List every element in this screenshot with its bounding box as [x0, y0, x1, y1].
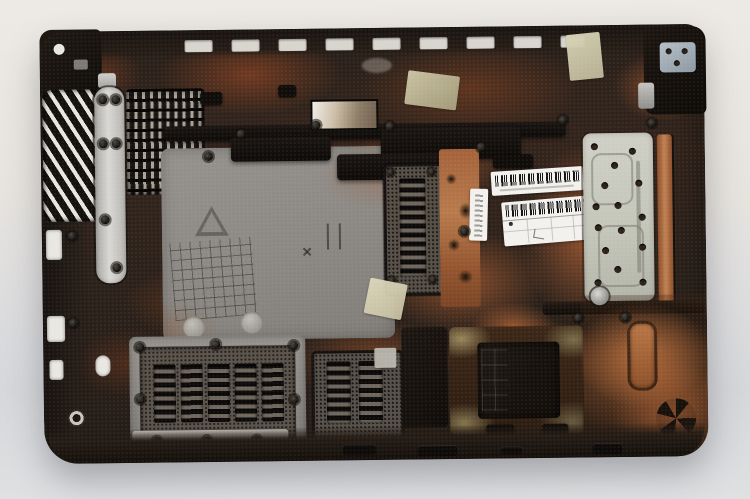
screw — [112, 139, 121, 148]
screw — [460, 227, 469, 236]
screw — [99, 139, 108, 148]
printed-dot — [509, 222, 513, 226]
screw — [477, 143, 486, 152]
screw — [69, 319, 78, 328]
rim-notch — [278, 39, 306, 51]
hinge-metal-tab — [74, 59, 88, 69]
plate-hole — [635, 180, 642, 187]
hinge-metal-fitting — [660, 42, 696, 72]
screw — [290, 395, 299, 404]
divider-block — [401, 327, 448, 428]
plate-hole — [639, 244, 646, 251]
screw — [429, 276, 436, 283]
molded-grid-pattern — [169, 237, 257, 321]
louver-column — [261, 363, 284, 421]
plastic-nub — [493, 154, 533, 168]
plate-hole — [611, 162, 618, 169]
left-shield-bracket — [94, 87, 126, 283]
oval-slot-cutout — [95, 355, 110, 376]
screw — [112, 263, 121, 272]
hinge-silver-post — [638, 83, 654, 109]
molded-x-mark — [302, 247, 312, 257]
screw — [98, 95, 107, 104]
right-shield-plate — [583, 133, 655, 302]
molded-double-bar-mark — [327, 223, 341, 249]
screw — [204, 152, 213, 161]
plate-hole — [595, 224, 602, 231]
bracket-top-tab — [98, 73, 116, 88]
rim-notch — [466, 37, 494, 49]
ringed-screw-hole — [68, 410, 85, 427]
photo-background — [0, 0, 750, 499]
stamped-channel — [591, 153, 634, 206]
port-cutout — [46, 230, 62, 260]
rim-notch — [419, 37, 447, 49]
louver-column — [326, 361, 351, 423]
tape-piece — [404, 70, 460, 110]
rim-cutout — [500, 446, 522, 454]
table-line — [503, 224, 593, 232]
handwritten-mark — [533, 229, 545, 240]
table-line — [572, 215, 575, 239]
plate-hole — [593, 203, 600, 210]
rim-notch — [184, 40, 212, 52]
louver-column — [358, 361, 383, 423]
rim-notch — [513, 36, 541, 48]
screw — [386, 122, 395, 131]
louver-column — [180, 364, 203, 422]
port-cutout — [49, 360, 63, 380]
screw — [237, 130, 246, 139]
tape-piece — [364, 277, 408, 320]
vertical-sticker-text — [474, 193, 483, 237]
barcode-sticker-bottom — [501, 195, 594, 246]
louver-column — [207, 364, 230, 422]
plastic-nub — [278, 85, 296, 97]
left-exhaust-vent — [42, 89, 98, 222]
bay-molded-grid — [481, 348, 508, 410]
screw — [387, 169, 394, 176]
plate-hole — [602, 247, 609, 254]
plate-hole — [601, 182, 608, 189]
plate-hole — [594, 279, 601, 286]
screw — [289, 341, 298, 350]
port-cutout — [47, 316, 65, 342]
louver-column — [153, 364, 176, 422]
screw — [621, 313, 630, 322]
screw — [101, 215, 110, 224]
copper-rail-right — [657, 134, 674, 308]
tape-square — [374, 348, 396, 368]
center-mesh-vent — [383, 163, 447, 296]
screw — [428, 168, 435, 175]
table-line — [526, 219, 529, 243]
plate-hole — [614, 266, 621, 273]
screw — [111, 95, 120, 104]
plate-hole — [639, 279, 646, 286]
latch-slider — [592, 443, 622, 454]
screw — [647, 119, 656, 128]
fitting-hole — [674, 60, 680, 66]
tape-piece — [566, 32, 604, 81]
rim-notch — [325, 38, 353, 50]
vertical-serial-sticker — [469, 189, 488, 241]
screw — [211, 340, 220, 349]
louver-column — [234, 363, 257, 421]
rim-notch — [372, 38, 400, 50]
louver-column — [399, 178, 426, 276]
latch-slider — [417, 445, 457, 456]
bottom-rim — [48, 422, 704, 464]
latch-slider — [342, 444, 376, 455]
screw-boss — [241, 311, 263, 333]
screw — [311, 121, 320, 130]
battery-bay — [449, 325, 584, 435]
screw-boss — [183, 316, 205, 338]
plastic-nub — [200, 92, 222, 105]
rim-notch — [231, 39, 259, 51]
plate-hole — [639, 214, 646, 221]
screw — [135, 343, 144, 352]
plate-hole — [591, 143, 598, 150]
screw — [558, 116, 567, 125]
laptop-bottom-case — [39, 24, 708, 464]
rail-block — [231, 137, 331, 162]
screw — [136, 395, 145, 404]
oval-slot — [627, 321, 658, 391]
hinge-mount-right — [643, 26, 706, 115]
silver-standoff — [591, 287, 609, 305]
screw — [68, 232, 77, 241]
plate-hole — [629, 148, 636, 155]
plate-hole — [618, 227, 625, 234]
screw — [574, 313, 583, 322]
plate-hole — [615, 202, 622, 209]
recycling-triangle-inner — [201, 212, 223, 232]
bay-recess — [477, 342, 560, 419]
fitting-hole — [682, 48, 688, 54]
hinge-screw-hole — [54, 44, 65, 55]
fitting-hole — [666, 48, 672, 54]
table-line — [550, 217, 553, 241]
